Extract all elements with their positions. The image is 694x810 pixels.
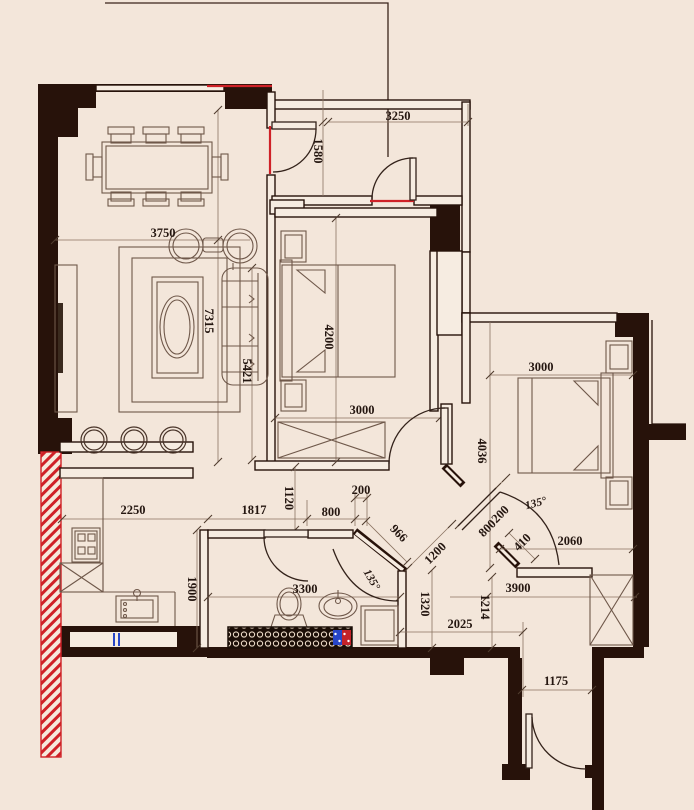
red-hatched-wall-strip xyxy=(41,452,61,757)
dim-label-hall-c: 800 xyxy=(322,505,341,519)
dim-label-kitchen-width: 2250 xyxy=(121,503,146,517)
dim-label-foyer-c: 2025 xyxy=(448,617,473,631)
dim-label-bedroom1-width: 3000 xyxy=(350,403,375,417)
dim-label-living-width: 3750 xyxy=(151,226,176,240)
dim-label-bath-width: 3300 xyxy=(293,582,318,596)
dim-label-top-width: 3250 xyxy=(386,109,411,123)
dim-label-hall-b: 200 xyxy=(352,483,371,497)
paper-background xyxy=(0,0,694,810)
floor-plan-page: 3250 1580 3750 7315 5421 4200 3000 3000 … xyxy=(0,0,694,810)
dim-label-bedroom2-side: 2060 xyxy=(558,534,583,548)
dim-label-entry-opening: 1580 xyxy=(311,139,325,164)
dim-label-living-length: 7315 xyxy=(202,309,216,334)
blue-tile xyxy=(333,630,342,645)
tv-icon xyxy=(58,303,63,373)
dim-label-hall-a: 1120 xyxy=(282,486,296,510)
dim-label-foyer-b: 1214 xyxy=(478,595,492,621)
dim-label-bedroom2-length: 4036 xyxy=(475,439,489,464)
dim-label-entry-door-width: 1175 xyxy=(544,674,568,688)
red-tile xyxy=(342,630,351,645)
dim-label-kitchen-depth: 1900 xyxy=(185,577,199,602)
floor-plan-canvas: 3250 1580 3750 7315 5421 4200 3000 3000 … xyxy=(0,0,694,810)
vanity-mosaic-strip xyxy=(228,627,352,648)
dim-label-bedroom1-length: 4200 xyxy=(322,325,336,350)
dim-label-sofa-length: 5421 xyxy=(240,359,254,384)
dim-label-bedroom2-width: 3000 xyxy=(529,360,554,374)
dim-label-hall-d: 1817 xyxy=(242,503,267,517)
dim-label-foyer-d: 3900 xyxy=(506,581,531,595)
dim-label-foyer-a: 1320 xyxy=(418,592,432,617)
